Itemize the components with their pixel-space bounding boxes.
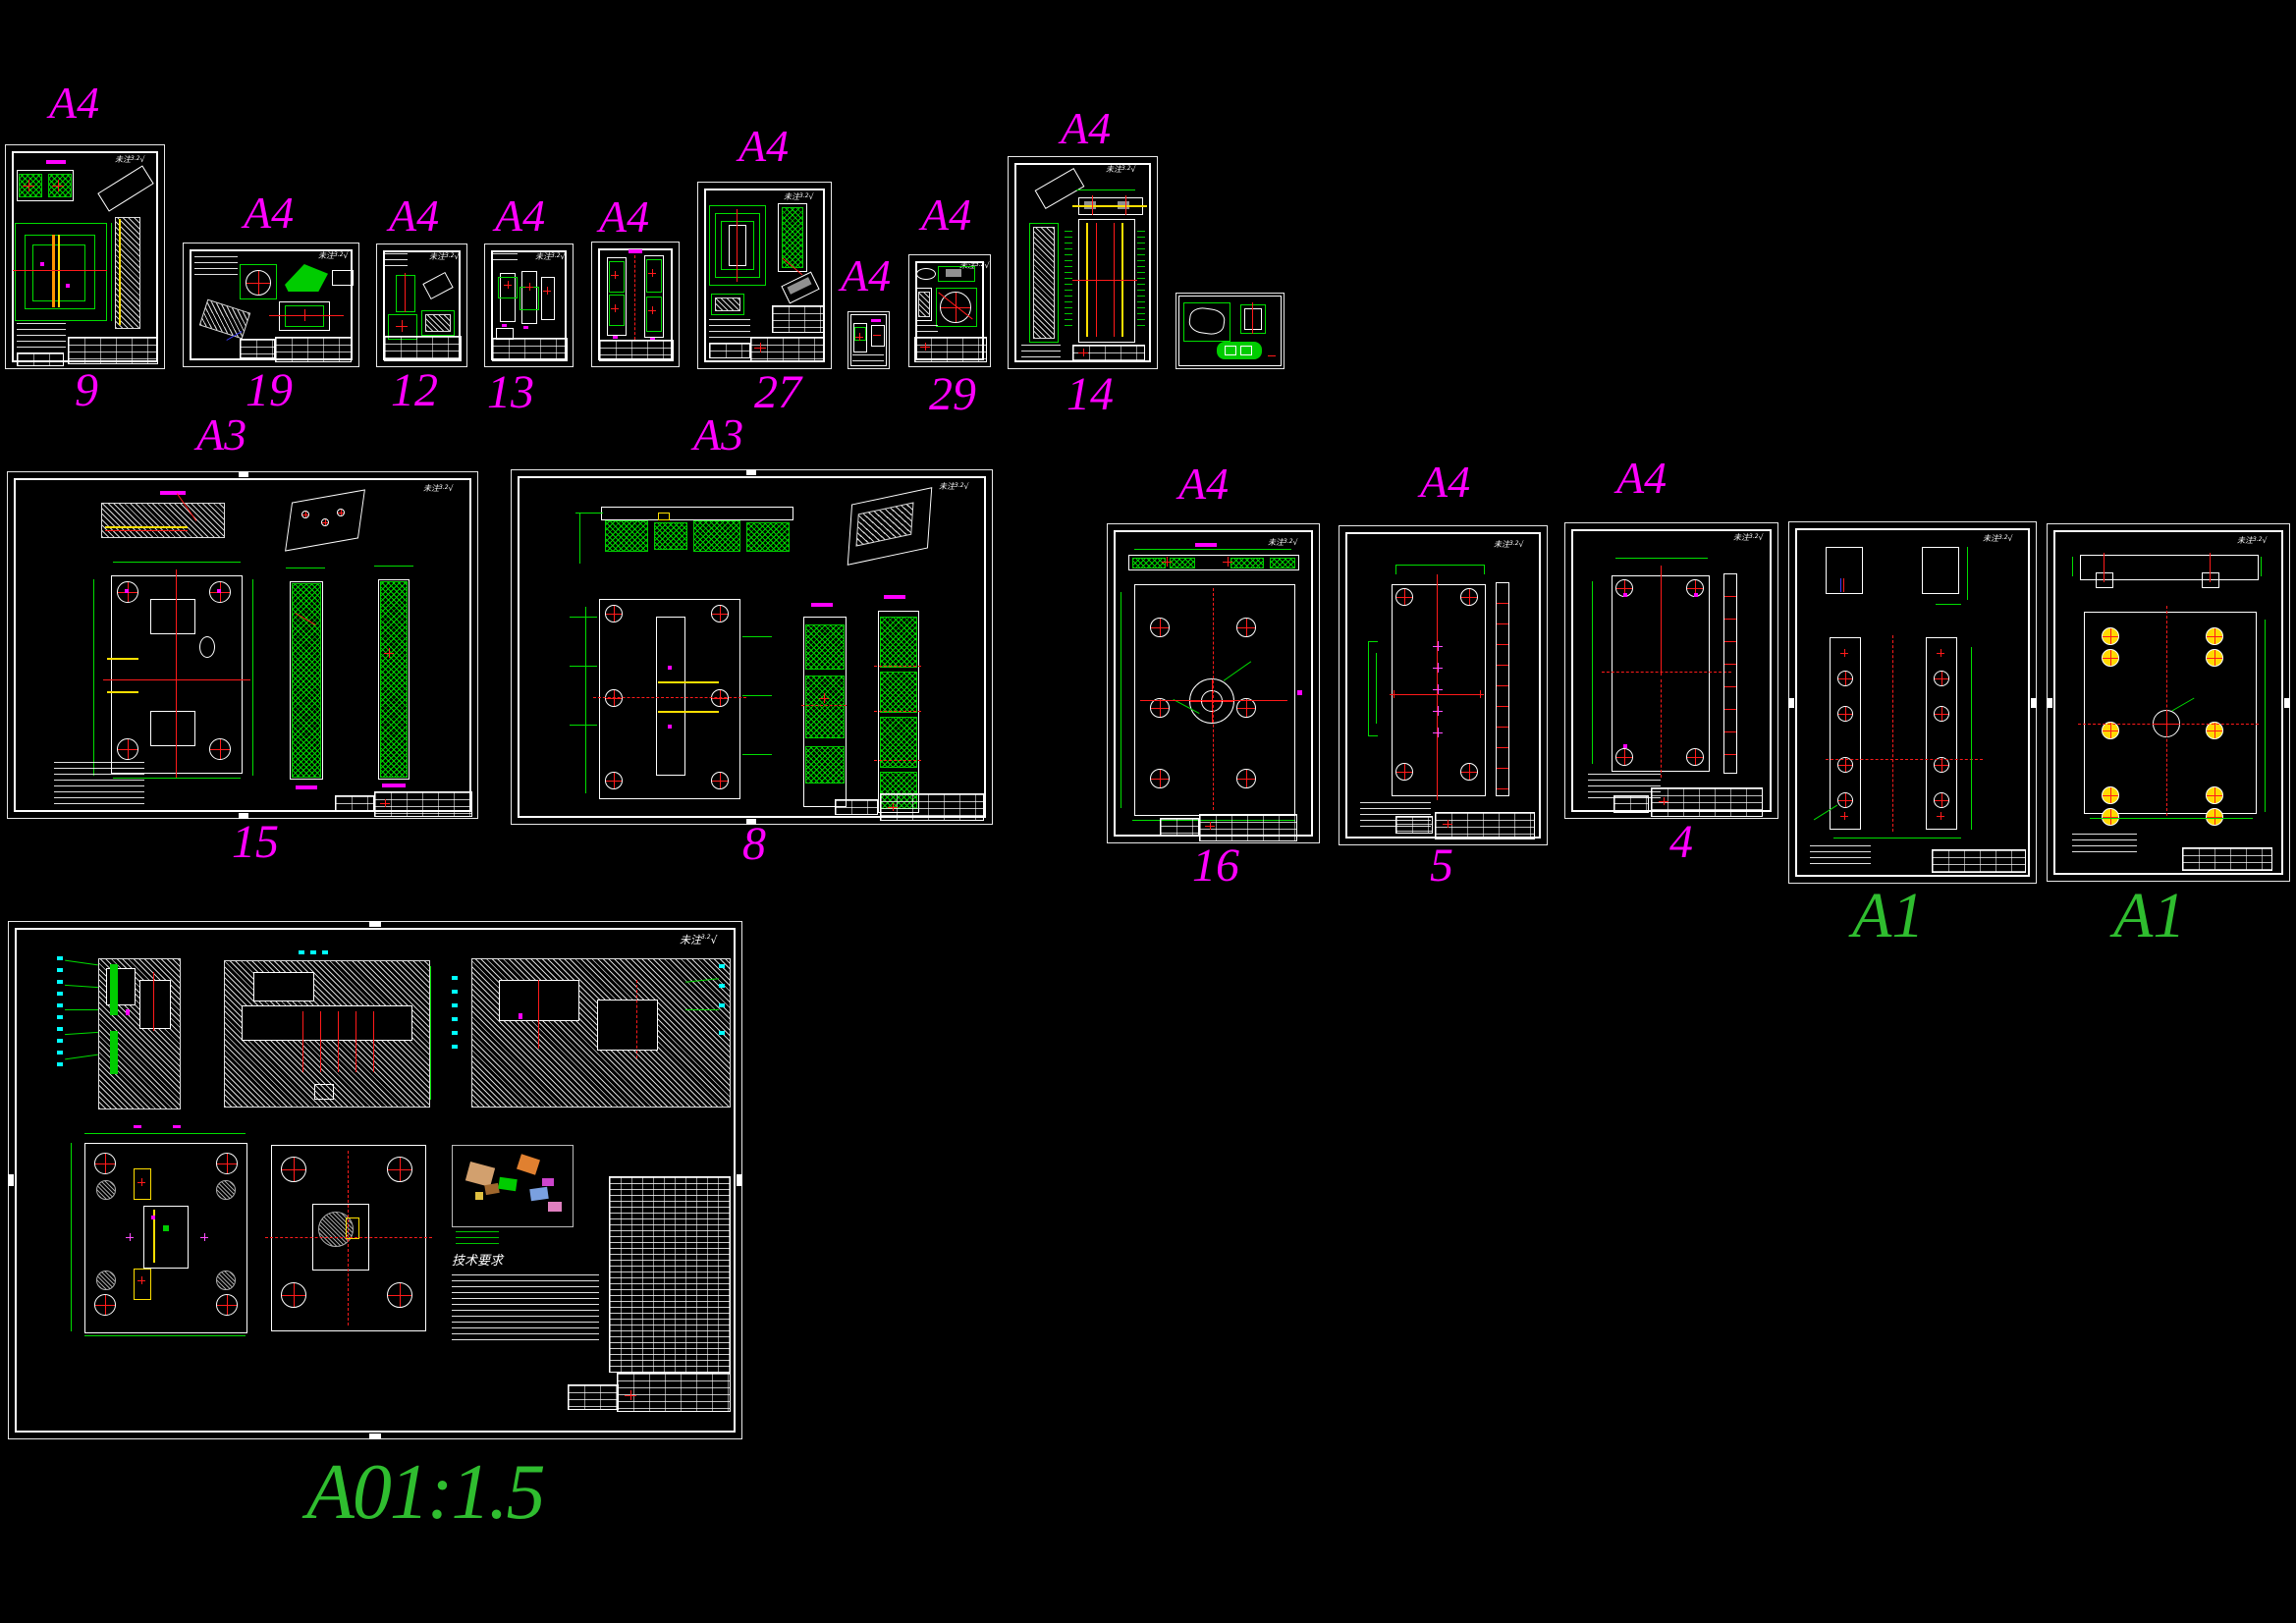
leader-tag [452,990,458,994]
sheet-29[interactable]: 未注3.2√ [908,254,991,367]
sheet-assembly[interactable]: 未注3.2√ [8,921,742,1439]
centerline [874,666,921,667]
hole-mark [2102,649,2119,667]
part-section [715,298,740,311]
tech-requirements-heading: 技术要求 [452,1255,503,1268]
dim-line [84,1335,246,1336]
center-mark [611,271,619,279]
hole-mark [1150,698,1170,718]
hatch-region [1270,558,1295,568]
leader-tag [57,1003,63,1007]
center-mark [52,180,64,191]
ejector-pin [338,1011,339,1072]
centerline [1843,578,1844,592]
surface-roughness-mark: 未注3.2√ [318,252,349,260]
sheet-number-label: 9 [75,367,98,414]
thumbnail-caption [456,1231,499,1245]
hole-mark [2206,649,2223,667]
hatch-region [805,746,845,784]
center-mark [1223,557,1232,567]
center-mark [855,333,863,341]
paper-size-label-a1: A1 [1852,884,1924,948]
part-view [729,225,746,266]
dim-text [668,725,672,729]
sheet-4[interactable]: 未注3.2√ [1564,522,1778,819]
sheet-number-label: 8 [742,821,766,868]
dim-line [71,1143,72,1331]
part-edge [658,711,719,713]
center-mark [1205,822,1215,830]
hole-mark [337,509,345,516]
leader-arrows [1065,231,1072,329]
centerline [538,980,539,1049]
hole-mark [1934,671,1949,686]
dim-line [2261,557,2262,576]
paper-size-label: A4 [1061,106,1111,151]
dim-line [1134,549,1291,550]
leader-tag [452,1003,458,1007]
hole-mark [1934,792,1949,808]
paper-size-label: A4 [389,193,439,239]
paper-size-label: A4 [1616,456,1667,501]
title-block [68,337,158,364]
title-block [1932,849,2026,873]
hole-mark [711,605,729,622]
dim-arrow [107,691,138,693]
hole-mark [605,605,623,622]
sheet-number-label: 12 [391,367,438,414]
title-block [492,338,568,361]
hole-mark [96,1180,116,1200]
center-mark [1433,641,1443,651]
leader-tag [310,950,316,954]
hole-mark [216,1180,236,1200]
sheet-5[interactable]: 未注3.2√ [1339,525,1548,845]
hole-mark [94,1294,116,1316]
dim-line [1971,647,1972,830]
centerline [1140,700,1287,701]
hole-mark [1460,588,1478,606]
part-detail [1225,346,1236,355]
sheet-number-label: 27 [754,369,801,416]
hole-mark [1837,706,1853,722]
dim-line [2265,620,2266,812]
dim-line [1395,565,1396,574]
paper-size-label: A4 [495,193,545,239]
dim-text [502,324,507,327]
center-mark [504,281,512,289]
leader-tag [57,1039,63,1043]
iso-part [498,1177,517,1191]
centerline [874,711,921,712]
center-mark [1840,812,1848,820]
dim-line [1592,581,1593,764]
leader-tag [299,950,304,954]
dim-line [1833,838,1961,839]
sheet-small[interactable] [847,311,890,369]
hole-mark [2102,786,2119,804]
sheet-number-label: 5 [1430,842,1453,890]
centerline [634,255,635,340]
sheet-27[interactable]: 未注3.2√ [697,182,832,369]
centerline [176,569,177,778]
dim-line [2090,818,2253,819]
hole-mark [281,1282,306,1308]
hole-mark [605,772,623,789]
leader-tag [57,956,63,960]
dim-line [570,725,597,726]
hole-mark [1395,763,1413,781]
dim-text [519,1013,522,1019]
cavity-detail [143,1206,189,1269]
centerline [103,679,250,680]
dim-line [1484,565,1485,574]
centerline [874,760,921,761]
center-mark [819,693,829,703]
paper-size-label: A4 [244,190,294,236]
revision-table [240,339,275,358]
leader-tag [57,992,63,996]
centerline [1213,588,1214,810]
center-bore [1201,690,1223,712]
hole-mark [2206,808,2223,826]
centerline [1072,280,1137,281]
center-mark [1937,812,1944,820]
center-mark [1433,663,1443,673]
sheet-number-label: 15 [232,819,279,866]
dim-text [217,589,221,593]
centerline [1252,302,1253,334]
centerline [801,705,847,706]
centerline [153,972,154,1031]
title-block [384,336,462,361]
parameter-table [772,305,825,333]
leader-tag [719,1003,725,1007]
section-label [629,249,642,253]
dim-line [570,617,597,618]
center-mark [1433,728,1443,737]
revision-table [568,1384,619,1410]
border-tab [1788,698,1794,708]
part-detail [656,617,685,776]
hole-mark [1460,763,1478,781]
hatch-region [654,522,687,550]
surface-roughness-mark: 未注3.2√ [535,253,566,261]
part-edge [119,219,121,325]
part-section [425,314,451,332]
part-detail [150,711,195,746]
dim-line [2072,557,2073,576]
part-view [1244,308,1262,330]
side-view-strip [1496,582,1509,796]
leader-tag [57,1062,63,1066]
border-tab [2031,698,2037,708]
center-mark [648,306,656,314]
leader-tag [57,1015,63,1019]
hole-mark [711,772,729,789]
leader-tag [57,980,63,984]
border-tab [737,1174,742,1186]
part-view [332,270,354,286]
centerline [2078,724,2259,725]
part-edge [105,526,188,528]
leader-tag [57,1027,63,1031]
dim-text [151,1216,155,1219]
sheet-9[interactable]: 未注3.2√ [5,144,165,369]
hole-mark [94,1153,116,1174]
dim-text [1297,690,1302,695]
center-mark [1443,820,1452,828]
center-mark [137,1276,145,1284]
part-detail [150,599,195,634]
part-detail [499,980,579,1021]
hole-mark [216,1271,236,1290]
hatch-region [1132,558,1166,568]
border-tab [2284,698,2290,708]
hole-mark [2102,808,2119,826]
sheet-lever[interactable] [1175,293,1285,369]
hole-mark [1150,618,1170,637]
part-view [1922,547,1959,594]
revision-table [835,799,878,815]
border-tab [239,471,248,477]
center-mark [299,309,310,321]
center-mark [384,648,394,658]
hole-mark [387,1157,412,1182]
notes-text [709,319,750,339]
hole-mark [2206,627,2223,645]
hole-mark [96,1271,116,1290]
sheet-number-label: 29 [929,371,976,418]
hole-mark [301,511,309,518]
center-mark [1390,690,1397,698]
centerline [1661,566,1662,676]
part-section [1033,227,1055,339]
hatch-region [805,676,845,738]
surface-roughness-mark: 未注3.2√ [2237,537,2268,545]
center-mark [1433,684,1443,694]
part-edge [110,1031,118,1074]
border-tab [239,813,248,819]
leader-tag [452,1045,458,1049]
leader-tag [719,984,725,988]
hole-mark [281,1157,306,1182]
center-mark [1433,706,1443,716]
part-detail [139,980,171,1029]
hatch-region [1170,558,1195,568]
dim-text [66,284,70,288]
sheet-19[interactable]: 未注3.2√ [183,243,359,367]
border-tab [2047,698,2052,708]
border-tab [369,921,381,927]
part-detail [163,1225,169,1231]
sheet-15[interactable]: 未注3.2√ [7,471,478,819]
hole-mark [1837,671,1853,686]
paper-size-label-a1: A1 [2113,884,2185,948]
part-detail [2096,572,2113,588]
leader-tag [452,976,458,980]
revision-table [335,795,374,811]
side-view-strip [1723,573,1737,774]
surface-roughness-mark: 未注3.2√ [784,193,814,201]
leader-tag [57,968,63,972]
part-detail [2202,572,2219,588]
dim-line [1368,641,1378,642]
sheet-number-label: 14 [1066,371,1114,418]
center-mark [1937,649,1944,657]
hole-mark [2102,627,2119,645]
dim-line [579,513,580,564]
revision-table [709,343,750,358]
leader-arrows [1137,231,1145,329]
part-view [541,277,555,320]
sheet-12[interactable]: 未注3.2√ [376,243,467,367]
dim-line [585,607,586,793]
border-tab [746,469,756,475]
centerline [1125,195,1126,215]
hole-mark [1236,618,1256,637]
hatch-region [805,624,845,670]
centerline [1397,694,1480,695]
notes-text [916,325,938,335]
sheet-guide[interactable] [591,242,680,367]
center-mark [396,320,408,332]
dim-line [374,566,413,567]
centerline [2210,553,2211,582]
notes-text [384,253,408,267]
sheet-13[interactable]: 未注3.2√ [484,243,574,367]
dim-line [113,562,241,563]
paper-size-label: A4 [921,192,971,238]
leader-tag [322,950,328,954]
sheet-number-label: 16 [1192,842,1239,890]
hole-mark [117,738,138,760]
sheet-a1-right[interactable]: 未注3.2√ [2047,523,2290,882]
title-block [852,354,884,362]
revision-table [1395,816,1433,834]
center-mark [1476,690,1484,698]
parts-list-table [609,1176,731,1373]
notes-text [2072,834,2137,857]
dim-line [84,1133,246,1134]
centerline [1892,635,1893,832]
revision-table [1613,795,1649,813]
center-mark [625,1390,636,1400]
hatch-region [1230,558,1264,568]
section-label [160,491,186,495]
section-label [296,785,317,789]
centerline [2166,606,2167,816]
hole-mark [1395,588,1413,606]
sheet-a1-left[interactable]: 未注3.2√ [1788,521,2037,884]
ejector-pin [373,1011,374,1072]
border-tab [369,1434,381,1439]
hole-mark [1686,748,1704,766]
sheet-8[interactable]: 未注3.2√ [511,469,993,825]
dim-line [286,568,325,568]
dim-text [173,1125,181,1128]
dim-text [134,1125,141,1128]
dim-text [668,666,672,670]
center-mark [1659,797,1668,805]
sheet-14[interactable]: 未注3.2√ [1008,156,1158,369]
part-detail [253,972,314,1001]
leader-tag [452,1017,458,1021]
surface-roughness-mark: 未注3.2√ [1106,166,1136,174]
paper-size-label: A4 [49,81,99,126]
dim-line [1121,592,1121,808]
dim-text [523,326,528,329]
section-label [871,319,881,322]
ejector-pin [302,1011,303,1072]
sheet-16[interactable]: 未注3.2√ [1107,523,1320,843]
dim-line [111,223,112,321]
centerline [873,335,881,336]
hole-mark [209,738,231,760]
dim-frame [646,297,662,332]
slot-mark [134,1269,151,1300]
leader-tag [57,1051,63,1055]
centerline [1826,759,1983,760]
dim-text [1623,744,1627,748]
leader-tag [452,1031,458,1035]
centerline [405,273,406,312]
iso-part [475,1192,483,1200]
hole-mark [1236,698,1256,718]
notes-text [492,253,518,265]
surface-roughness-mark: 未注3.2√ [115,156,145,164]
title-block [599,340,674,361]
iso-part [529,1187,548,1201]
dim-text [613,336,618,339]
center-mark [1078,349,1088,356]
part-edge [658,681,719,683]
section-label [1195,543,1217,547]
notes-text [194,256,238,280]
center-mark [200,1233,208,1241]
centerline [265,1237,432,1238]
paper-size-label: A4 [599,194,649,240]
paper-size-label: A4 [841,253,891,298]
part-face [1217,342,1262,359]
iso-part [542,1178,554,1186]
dim-line [570,666,597,667]
surface-roughness-mark: 未注3.2√ [939,483,969,491]
dim-line [430,966,431,1100]
notes-text [54,762,144,807]
center-mark [648,269,656,277]
centerline [1661,679,1662,778]
dim-line [1936,604,1961,605]
center-mark [1162,557,1172,567]
hole-mark [216,1294,238,1316]
paper-size-label: A4 [1178,461,1229,507]
dim-line [1376,653,1377,724]
assembly-scale-label: A01:1.5 [306,1453,544,1532]
dim-text [40,262,44,266]
revision-table [17,352,64,366]
part-view [871,325,885,347]
title-block [2182,847,2272,871]
centerline [636,980,637,1058]
section-label [382,784,406,787]
iso-part [548,1202,562,1212]
center-mark [525,283,533,291]
centerline [2104,553,2105,582]
dim-line [1395,565,1484,566]
dim-line [1615,558,1708,559]
dim-text [125,589,129,593]
